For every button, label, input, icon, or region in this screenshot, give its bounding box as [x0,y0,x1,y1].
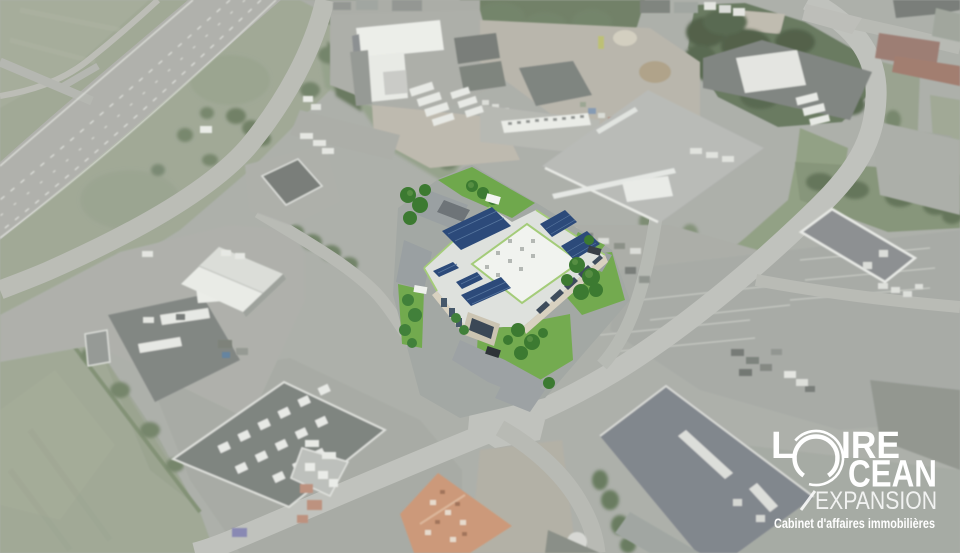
svg-text:EXPANSION: EXPANSION [815,487,937,515]
svg-text:L: L [771,425,794,467]
svg-text:Cabinet d'affaires immobilière: Cabinet d'affaires immobilières [774,516,935,531]
